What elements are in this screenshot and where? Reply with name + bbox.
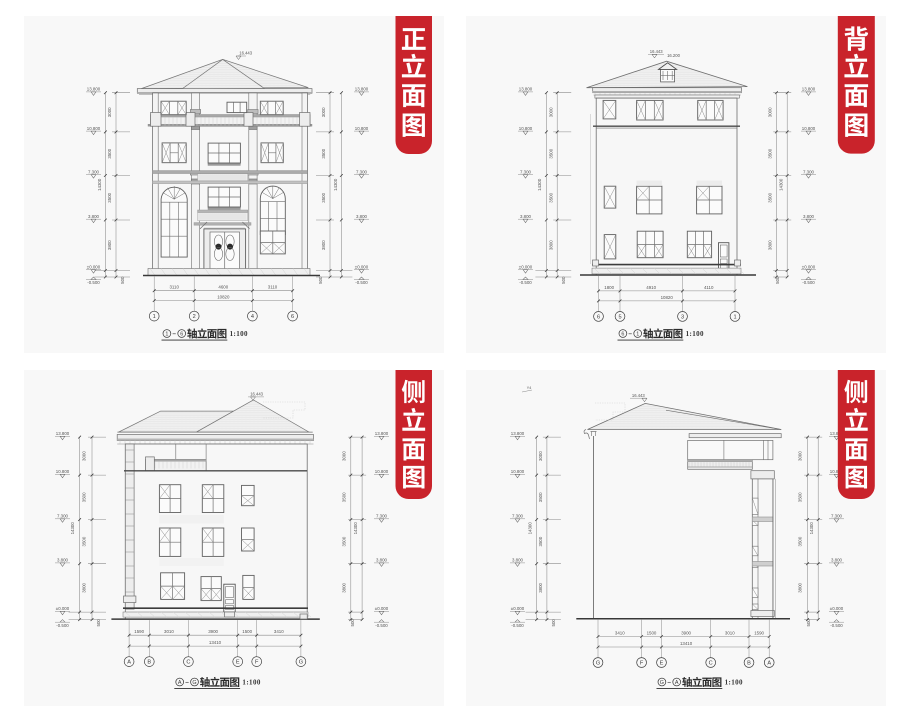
svg-text:10820: 10820	[217, 295, 230, 300]
svg-text:3000: 3000	[798, 451, 803, 461]
svg-text:A: A	[675, 680, 679, 686]
svg-text:±0.000: ±0.000	[87, 265, 101, 270]
svg-text:3000: 3000	[538, 451, 543, 461]
svg-text:3500: 3500	[321, 192, 326, 202]
svg-text:10.800: 10.800	[355, 126, 369, 131]
svg-text:1:100: 1:100	[686, 330, 704, 338]
svg-text:1: 1	[733, 314, 736, 320]
svg-text:Y4: Y4	[527, 386, 531, 390]
svg-text:1:100: 1:100	[242, 678, 260, 686]
svg-text:B: B	[747, 660, 751, 666]
svg-text:14300: 14300	[353, 522, 358, 535]
svg-text:13.800: 13.800	[802, 87, 816, 92]
svg-text:13410: 13410	[209, 640, 222, 645]
svg-text:–: –	[172, 331, 176, 338]
svg-text:G: G	[596, 660, 600, 666]
svg-text:7.300: 7.300	[520, 170, 532, 175]
svg-text:13410: 13410	[680, 641, 693, 646]
svg-text:±0.000: ±0.000	[511, 606, 525, 611]
svg-text:3800: 3800	[321, 240, 326, 250]
svg-text:–: –	[628, 331, 632, 338]
svg-text:5: 5	[618, 314, 621, 320]
svg-text:14300: 14300	[70, 522, 75, 535]
svg-text:3.800: 3.800	[520, 214, 532, 219]
svg-text:3800: 3800	[798, 582, 803, 592]
svg-text:13.800: 13.800	[519, 87, 533, 92]
svg-text:10.800: 10.800	[802, 126, 816, 131]
svg-text:6: 6	[597, 314, 600, 320]
svg-text:1:100: 1:100	[725, 678, 743, 686]
svg-text:G: G	[299, 660, 303, 666]
svg-text:500: 500	[775, 276, 780, 284]
svg-text:14300: 14300	[779, 178, 784, 191]
svg-text:1590: 1590	[134, 629, 144, 634]
svg-text:3: 3	[681, 314, 684, 320]
svg-text:16.443: 16.443	[239, 51, 252, 56]
svg-text:A: A	[127, 660, 131, 666]
svg-text:7.300: 7.300	[512, 514, 524, 519]
svg-text:10.800: 10.800	[87, 126, 101, 131]
svg-text:500: 500	[806, 619, 811, 627]
svg-text:3500: 3500	[82, 492, 87, 502]
svg-text:10.800: 10.800	[375, 469, 389, 474]
svg-text:F: F	[640, 660, 644, 666]
svg-text:3500: 3500	[798, 536, 803, 546]
svg-text:-0.500: -0.500	[355, 280, 368, 285]
svg-text:6: 6	[291, 314, 294, 320]
svg-text:±0.000: ±0.000	[355, 265, 369, 270]
svg-text:7.300: 7.300	[376, 514, 388, 519]
svg-text:G: G	[660, 680, 664, 686]
svg-text:-0.500: -0.500	[830, 623, 843, 628]
svg-text:500: 500	[551, 619, 556, 627]
svg-text:-0.500: -0.500	[519, 280, 532, 285]
svg-text:3000: 3000	[107, 107, 112, 117]
svg-text:4910: 4910	[646, 285, 656, 290]
svg-text:±0.000: ±0.000	[375, 606, 389, 611]
svg-text:500: 500	[561, 276, 566, 284]
svg-text:13.800: 13.800	[87, 87, 101, 92]
svg-text:3.800: 3.800	[376, 558, 388, 563]
svg-text:3500: 3500	[342, 536, 347, 546]
svg-text:3110: 3110	[268, 285, 278, 290]
svg-text:16.443: 16.443	[250, 392, 263, 397]
svg-text:4110: 4110	[704, 285, 714, 290]
svg-text:3800: 3800	[538, 582, 543, 592]
svg-text:10820: 10820	[661, 295, 674, 300]
svg-text:16.443: 16.443	[650, 49, 663, 54]
svg-text:3.800: 3.800	[57, 558, 69, 563]
svg-text:3500: 3500	[768, 148, 773, 158]
svg-text:3110: 3110	[169, 285, 179, 290]
svg-text:7.300: 7.300	[57, 514, 69, 519]
svg-text:14300: 14300	[97, 178, 102, 191]
svg-text:A: A	[178, 680, 182, 686]
svg-text:4: 4	[251, 314, 254, 320]
svg-text:A: A	[767, 660, 771, 666]
svg-text:6: 6	[180, 331, 183, 337]
svg-text:4600: 4600	[218, 285, 228, 290]
svg-text:6: 6	[621, 331, 624, 337]
svg-text:3010: 3010	[164, 629, 174, 634]
svg-text:-0.500: -0.500	[56, 623, 69, 628]
svg-text:–: –	[185, 679, 189, 686]
svg-text:-0.500: -0.500	[511, 623, 524, 628]
svg-text:10.800: 10.800	[56, 469, 70, 474]
svg-text:3800: 3800	[82, 582, 87, 592]
svg-text:3500: 3500	[538, 492, 543, 502]
svg-text:500: 500	[318, 276, 323, 284]
svg-text:16.200: 16.200	[667, 53, 680, 58]
svg-text:±0.000: ±0.000	[519, 265, 533, 270]
svg-text:10.800: 10.800	[519, 126, 533, 131]
svg-text:3500: 3500	[107, 148, 112, 158]
svg-text:3900: 3900	[208, 629, 218, 634]
svg-text:±0.000: ±0.000	[830, 606, 844, 611]
svg-text:3000: 3000	[768, 107, 773, 117]
svg-text:14300: 14300	[527, 522, 532, 535]
svg-text:500: 500	[350, 619, 355, 627]
svg-text:13.800: 13.800	[56, 431, 70, 436]
svg-text:3000: 3000	[82, 451, 87, 461]
svg-text:-0.500: -0.500	[87, 280, 100, 285]
svg-text:3.800: 3.800	[88, 214, 100, 219]
svg-text:1500: 1500	[647, 631, 657, 636]
svg-text:500: 500	[120, 276, 125, 284]
svg-text:13.800: 13.800	[511, 431, 525, 436]
svg-text:3500: 3500	[342, 492, 347, 502]
svg-text:7.300: 7.300	[831, 514, 843, 519]
svg-text:10.800: 10.800	[511, 469, 525, 474]
svg-text:1800: 1800	[604, 285, 614, 290]
svg-text:±0.000: ±0.000	[56, 606, 70, 611]
svg-text:3500: 3500	[798, 492, 803, 502]
svg-text:3500: 3500	[768, 192, 773, 202]
svg-text:3500: 3500	[538, 536, 543, 546]
svg-text:7.300: 7.300	[356, 170, 368, 175]
svg-text:3410: 3410	[274, 629, 284, 634]
svg-text:13.800: 13.800	[375, 431, 389, 436]
svg-text:3.800: 3.800	[803, 214, 815, 219]
svg-text:3.800: 3.800	[512, 558, 524, 563]
svg-text:14300: 14300	[537, 178, 542, 191]
svg-text:7.300: 7.300	[88, 170, 100, 175]
svg-text:7.300: 7.300	[803, 170, 815, 175]
svg-text:1: 1	[165, 331, 168, 337]
svg-text:2: 2	[193, 314, 196, 320]
svg-text:3410: 3410	[615, 631, 625, 636]
svg-text:B: B	[147, 660, 151, 666]
svg-text:3800: 3800	[768, 240, 773, 250]
svg-text:3800: 3800	[107, 240, 112, 250]
svg-text:3000: 3000	[549, 107, 554, 117]
svg-text:14300: 14300	[333, 178, 338, 191]
svg-text:±0.000: ±0.000	[802, 265, 816, 270]
svg-text:3010: 3010	[725, 631, 735, 636]
svg-text:3.800: 3.800	[831, 558, 843, 563]
svg-text:C: C	[186, 660, 190, 666]
svg-text:C: C	[709, 660, 713, 666]
svg-text:3000: 3000	[321, 107, 326, 117]
svg-text:–: –	[667, 679, 671, 686]
svg-text:-0.500: -0.500	[802, 280, 815, 285]
svg-text:3.800: 3.800	[356, 214, 368, 219]
svg-text:3500: 3500	[549, 192, 554, 202]
svg-text:1: 1	[636, 331, 639, 337]
svg-text:16.443: 16.443	[632, 393, 645, 398]
svg-text:F: F	[255, 660, 259, 666]
svg-text:3800: 3800	[549, 240, 554, 250]
svg-text:-0.500: -0.500	[375, 623, 388, 628]
svg-text:3500: 3500	[107, 192, 112, 202]
svg-text:1: 1	[153, 314, 156, 320]
svg-text:500: 500	[96, 619, 101, 627]
svg-text:1500: 1500	[242, 629, 252, 634]
svg-text:3800: 3800	[342, 582, 347, 592]
svg-text:3500: 3500	[321, 148, 326, 158]
svg-text:14300: 14300	[809, 522, 814, 535]
svg-text:3500: 3500	[82, 536, 87, 546]
svg-text:1590: 1590	[754, 631, 764, 636]
svg-text:3900: 3900	[681, 631, 691, 636]
svg-text:3000: 3000	[342, 451, 347, 461]
svg-text:E: E	[660, 660, 664, 666]
svg-text:3500: 3500	[549, 148, 554, 158]
svg-text:13.800: 13.800	[355, 87, 369, 92]
svg-text:1:100: 1:100	[230, 330, 248, 338]
svg-text:G: G	[192, 680, 196, 686]
svg-text:E: E	[236, 660, 240, 666]
